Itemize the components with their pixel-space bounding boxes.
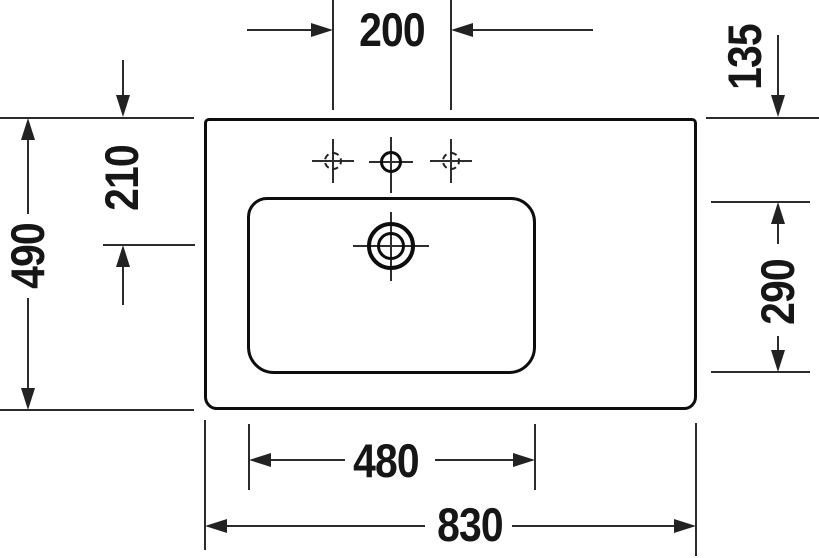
dim-label-back-ledge-depth: 135 — [723, 5, 767, 109]
dim-290-line-lower — [777, 336, 779, 350]
dim-label-back-to-drain: 210 — [100, 126, 144, 230]
dim-830-extension-right — [695, 423, 697, 556]
faucet-hole-left-circle-icon — [324, 152, 342, 170]
dim-490-arrow-up-icon — [21, 118, 35, 140]
dim-480-arrow-left-icon — [249, 453, 271, 467]
dim-830-arrow-left-icon — [205, 519, 227, 533]
dim-490-arrow-down-icon — [21, 388, 35, 410]
drain-center-extension-left — [103, 244, 195, 246]
faucet-hole-center-circle-icon — [380, 151, 402, 173]
dim-290-extension-top — [711, 201, 810, 203]
back-edge-extension-right — [706, 117, 819, 119]
dim-210-arrow-down-icon — [116, 95, 130, 117]
dim-label-overall-depth: 490 — [6, 204, 50, 308]
dim-200-tail-left — [247, 29, 311, 31]
dim-200-extension-right — [450, 0, 452, 110]
dim-290-extension-bottom — [711, 371, 810, 373]
dim-290-arrow-down-icon — [771, 350, 785, 372]
dim-830-tail-left — [227, 525, 425, 527]
dim-label-basin-width: 480 — [334, 439, 438, 483]
dim-830-tail-right — [512, 525, 674, 527]
dim-290-arrow-up-icon — [771, 202, 785, 224]
dim-200-arrow-left-icon — [311, 23, 333, 37]
dim-135-line — [777, 35, 779, 96]
drain-inner-circle-icon — [377, 232, 405, 260]
dim-480-tail-right — [435, 459, 513, 461]
dim-200-tail-right — [473, 29, 593, 31]
dim-210-tail-top — [122, 60, 124, 96]
dim-200-extension-left — [332, 0, 334, 110]
dim-200-arrow-right-icon — [451, 23, 473, 37]
technical-drawing-canvas: 200 135 490 210 290 — [0, 0, 819, 558]
dim-490-line-lower — [27, 298, 29, 388]
dim-480-arrow-right-icon — [513, 453, 535, 467]
dim-label-overall-width: 830 — [418, 503, 522, 547]
dim-210-arrow-up-icon — [116, 245, 130, 267]
dim-210-tail-bottom — [122, 267, 124, 305]
dim-135-arrow-down-icon — [771, 95, 785, 117]
dim-label-tap-hole-spacing: 200 — [340, 8, 444, 52]
dim-label-basin-depth: 290 — [756, 240, 800, 344]
dim-830-arrow-right-icon — [674, 519, 696, 533]
faucet-hole-right-circle-icon — [442, 152, 460, 170]
